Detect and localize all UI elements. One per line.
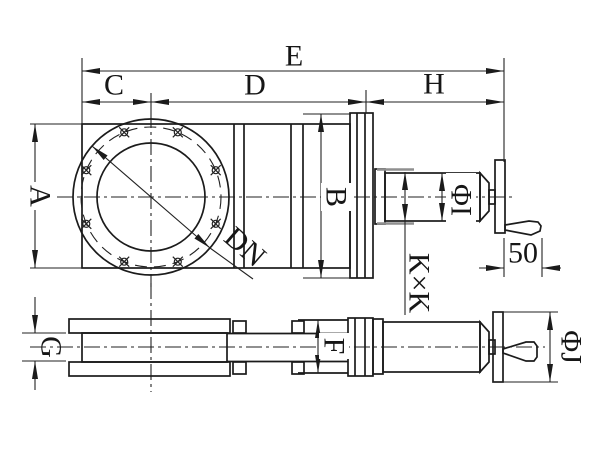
hand-lever xyxy=(505,221,541,235)
dim-F: F xyxy=(318,320,351,373)
dim-phi-I: ΦI xyxy=(442,173,478,227)
flange-plate-top xyxy=(69,319,230,333)
body-boss xyxy=(233,321,246,333)
label-KxK: K×K xyxy=(403,253,436,314)
front-view: E C D H A xyxy=(24,40,562,316)
body-boss xyxy=(292,321,304,333)
label-50: 50 xyxy=(508,237,538,270)
label-phi-J: ΦJ xyxy=(555,330,588,364)
label-D: D xyxy=(244,69,266,102)
label-G: G xyxy=(35,336,68,358)
drawing-canvas: E C D H A xyxy=(0,0,600,450)
label-A: A xyxy=(24,185,57,207)
dim-G: G xyxy=(22,297,68,390)
valve-technical-drawing: E C D H A xyxy=(0,0,600,450)
label-H: H xyxy=(423,68,445,101)
label-B: B xyxy=(320,187,353,207)
hand-lever xyxy=(503,342,537,361)
label-E: E xyxy=(285,40,303,73)
dim-C-D-H: C D H xyxy=(82,68,504,114)
body-boss xyxy=(233,362,246,374)
label-C: C xyxy=(104,69,124,102)
flange-plate-bottom xyxy=(69,362,230,376)
dim-50: 50 xyxy=(479,237,561,278)
valve-body xyxy=(82,124,350,268)
front-centerlines xyxy=(30,112,512,287)
side-view: G F ΦJ xyxy=(22,283,588,392)
dim-KxK: K×K xyxy=(403,172,436,315)
dim-B: B xyxy=(303,114,353,278)
label-DN: DN xyxy=(218,220,272,273)
label-phi-I: ΦI xyxy=(445,184,478,216)
label-F: F xyxy=(318,338,351,355)
